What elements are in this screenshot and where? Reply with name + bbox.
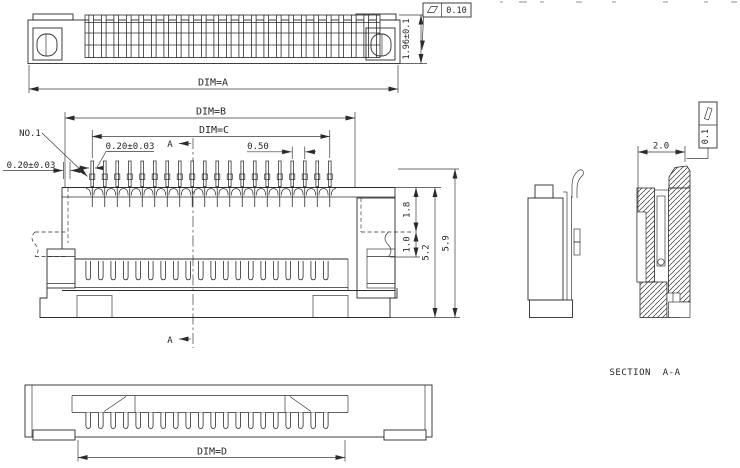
right-chamfer-mark — [290, 397, 311, 412]
overall-height-label: 5.9 — [442, 235, 452, 251]
flatness-value: 0.10 — [446, 6, 466, 16]
engineering-drawing-page: DIM=A 1.96±0.1 0.10 DIM=B — [0, 0, 740, 468]
dim-a: DIM=A — [29, 65, 398, 93]
side-view-contact-b — [574, 242, 580, 255]
dim-b-label: DIM=B — [196, 107, 226, 118]
depth-lower-label: 1.0 — [403, 236, 413, 252]
edge-margin-dim: 0.20±0.03 — [3, 161, 81, 179]
side-view — [528, 170, 584, 318]
pin-one-label: NO.1 — [19, 129, 41, 139]
right-solder-tab — [384, 430, 426, 440]
bottom-view-pads — [82, 413, 332, 432]
section-body — [637, 166, 690, 318]
top-view: DIM=A 1.96±0.1 0.10 — [28, 3, 471, 93]
connector-drawing: DIM=A 1.96±0.1 0.10 DIM=B — [0, 0, 740, 468]
top-view-left-flange — [33, 14, 73, 20]
left-ear — [47, 249, 75, 288]
depth-upper-label: 1.8 — [403, 202, 413, 218]
flatness-frame-section: 0.1 — [687, 102, 718, 159]
front-view-pins — [86, 160, 336, 207]
section-view: 2.0 0.1 SECTION A-A — [609, 102, 717, 378]
section-hook — [669, 166, 690, 188]
base-outline — [40, 288, 397, 318]
section-marker-top: A — [167, 140, 173, 150]
front-view: DIM=B DIM=C NO.1 0.20±0.03 0.20±0.03 — [3, 107, 460, 349]
edge-artifacts — [500, 1, 737, 3]
dim-d-label: DIM=D — [197, 447, 227, 458]
top-view-pin-comb — [85, 15, 380, 58]
section-flatness-value: 0.1 — [701, 129, 711, 144]
side-view-cap — [535, 185, 553, 198]
pitch-dim: 0.50 — [247, 142, 316, 159]
side-view-foot — [530, 300, 573, 318]
edge-margin-label: 0.20±0.03 — [7, 161, 56, 171]
height-dim-label: 1.96±0.1 — [402, 19, 412, 60]
top-view-left-cap — [33, 28, 62, 60]
front-view-lower-comb — [82, 261, 335, 282]
right-foot — [313, 296, 348, 318]
dim-c-label: DIM=C — [199, 125, 229, 136]
pitch-label: 0.50 — [247, 142, 269, 152]
right-block — [357, 198, 395, 298]
dim-a-label: DIM=A — [198, 78, 228, 89]
section-contact — [657, 196, 665, 266]
dim-d: DIM=D — [78, 440, 345, 462]
side-view-contact-a — [574, 229, 580, 242]
right-dims: 1.8 1.0 5.2 5.9 — [390, 169, 460, 318]
section-marker-bottom: A — [167, 336, 173, 346]
section-caption: SECTION A-A — [609, 368, 680, 378]
left-foot — [77, 296, 112, 318]
pin-width-label: 0.20±0.03 — [106, 142, 155, 152]
bottom-view: DIM=D — [25, 385, 432, 462]
hidden-left — [32, 188, 68, 257]
side-view-hook — [572, 170, 584, 198]
flatness-frame-top: 0.10 — [422, 3, 471, 50]
body-height-label: 5.2 — [422, 244, 432, 260]
left-solder-tab — [33, 430, 75, 440]
left-chamfer-mark — [104, 397, 126, 412]
section-width-label: 2.0 — [653, 142, 669, 152]
side-view-body — [528, 198, 563, 300]
